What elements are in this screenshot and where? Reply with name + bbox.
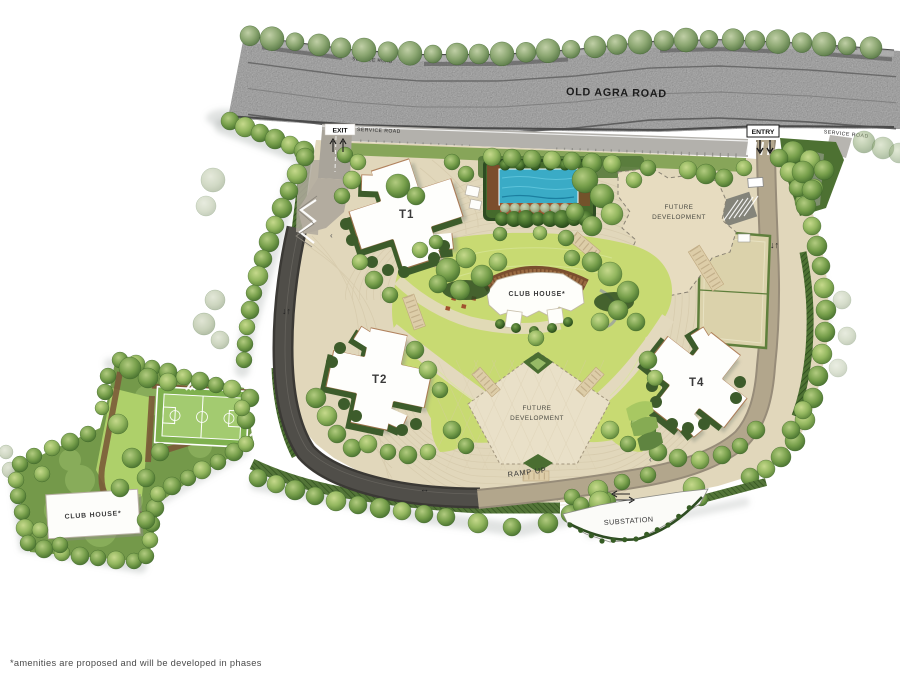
svg-text:‹: ‹ bbox=[330, 231, 333, 240]
svg-text:FUTURE: FUTURE bbox=[523, 405, 552, 412]
svg-text:↓↑: ↓↑ bbox=[282, 306, 291, 316]
svg-text:CLUB HOUSE*: CLUB HOUSE* bbox=[508, 291, 565, 298]
svg-text:DEVELOPMENT: DEVELOPMENT bbox=[510, 415, 564, 422]
svg-text:*amenities are proposed and wi: *amenities are proposed and will be deve… bbox=[10, 658, 262, 668]
svg-text:EXIT: EXIT bbox=[332, 128, 348, 135]
svg-text:OLD AGRA ROAD: OLD AGRA ROAD bbox=[566, 86, 667, 100]
svg-text:‹: ‹ bbox=[649, 455, 652, 464]
svg-text:DEVELOPMENT: DEVELOPMENT bbox=[652, 214, 706, 221]
svg-text:T2: T2 bbox=[372, 374, 387, 386]
svg-text:ENTRY: ENTRY bbox=[752, 129, 775, 136]
svg-text:↔: ↔ bbox=[420, 484, 429, 494]
svg-text:T4: T4 bbox=[689, 377, 704, 389]
svg-text:T1: T1 bbox=[399, 209, 414, 221]
svg-text:FUTURE: FUTURE bbox=[665, 204, 694, 211]
svg-text:↓↑: ↓↑ bbox=[770, 240, 779, 250]
